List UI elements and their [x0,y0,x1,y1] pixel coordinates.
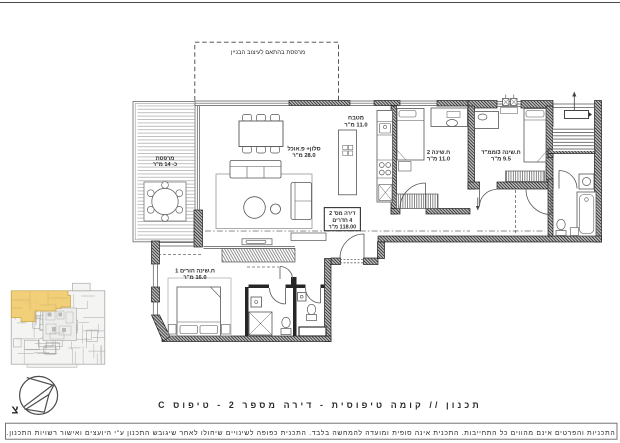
svg-text:ח.שינה 3/ממ"ד: ח.שינה 3/ממ"ד [481,150,521,156]
svg-text:ח.שינה הורים 1: ח.שינה הורים 1 [175,268,215,274]
svg-text:תכנון // קומה טיפוסית - דירה מ: תכנון // קומה טיפוסית - דירה מספר 2 - טי… [158,400,482,410]
svg-text:11.0 מ"ר: 11.0 מ"ר [427,157,450,163]
svg-text:סלון+ פ.אוכל: סלון+ פ.אוכל [287,145,320,153]
svg-text:כ- 14 מ"ר: כ- 14 מ"ר [153,162,177,168]
svg-text:9.5 מ"ר: 9.5 מ"ר [491,157,512,163]
svg-text:ח.שינה 2: ח.שינה 2 [427,150,450,156]
svg-text:118.00 מ"ר: 118.00 מ"ר [329,225,357,231]
svg-text:התכניות והפרטים אינם מהווים כל: התכניות והפרטים אינם מהווים כל התחייבות.… [7,429,616,437]
svg-text:דירה מס' 2: דירה מס' 2 [329,211,355,217]
svg-text:צ: צ [11,405,18,417]
svg-text:28.0 מ"ר: 28.0 מ"ר [292,153,315,159]
svg-text:מרפסת: מרפסת [156,156,175,162]
svg-text:16.0 מ"ר: 16.0 מ"ר [183,275,206,281]
svg-text:מטבח: מטבח [348,116,364,122]
svg-text:4 חדרים: 4 חדרים [332,218,352,224]
svg-text:מרפסת בהתאם לעיצוב הבניין: מרפסת בהתאם לעיצוב הבניין [231,48,305,56]
svg-text:11.0 מ"ר: 11.0 מ"ר [344,122,367,128]
